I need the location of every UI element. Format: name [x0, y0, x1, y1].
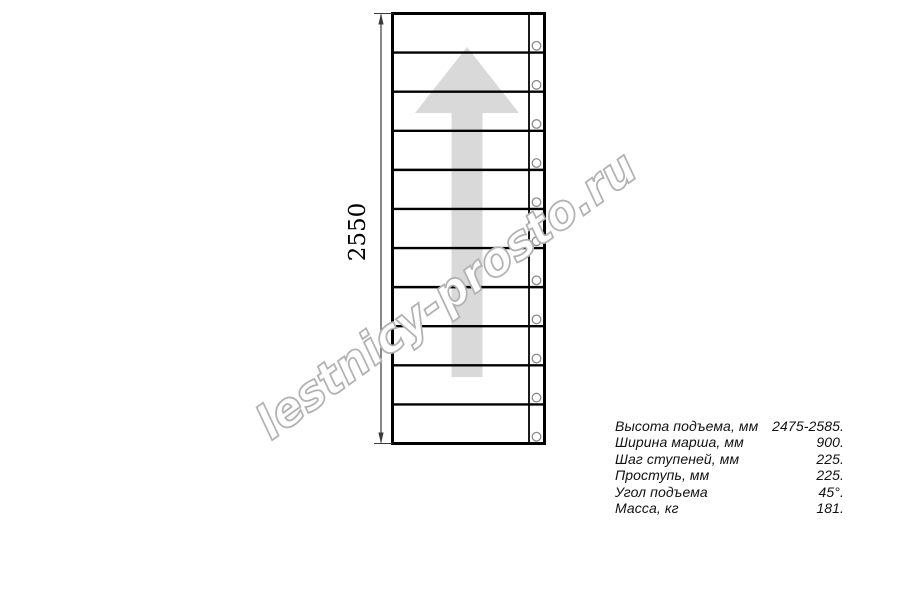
spec-value: 2475-2585. — [772, 418, 844, 434]
spec-row: Угол подъема45°. — [615, 484, 844, 500]
spec-value: 225. — [816, 467, 844, 483]
spec-label: Проступь, мм — [615, 467, 709, 483]
bolt-circle — [532, 315, 541, 324]
bolt-circle — [532, 393, 541, 402]
spec-row: Ширина марша, мм900. — [615, 434, 844, 450]
dimension-arrow-up — [378, 14, 383, 25]
spec-value: 45°. — [819, 484, 844, 500]
bolt-circle — [532, 159, 541, 168]
spec-value: 225. — [816, 451, 844, 467]
spec-row: Высота подъема, мм2475-2585. — [615, 418, 844, 434]
spec-label: Шаг ступеней, мм — [615, 451, 739, 467]
bolt-circle — [532, 354, 541, 363]
spec-label: Угол подъема — [615, 484, 708, 500]
bolt-circle — [532, 41, 541, 50]
spec-row: Проступь, мм225. — [615, 467, 844, 483]
page-canvas: 2550lestnicy-prosto.ru Высота подъема, м… — [0, 0, 900, 600]
spec-table: Высота подъема, мм2475-2585.Ширина марша… — [615, 418, 844, 516]
spec-label: Масса, кг — [615, 500, 679, 516]
spec-value: 900. — [816, 434, 844, 450]
bolt-circle — [532, 432, 541, 441]
spec-value: 181. — [816, 500, 844, 516]
dimension-arrow-down — [378, 433, 383, 444]
bolt-circle — [532, 120, 541, 129]
spec-label: Ширина марша, мм — [615, 434, 744, 450]
bolt-circle — [532, 81, 541, 90]
spec-label: Высота подъема, мм — [615, 418, 758, 434]
dimension-label: 2550 — [345, 203, 371, 262]
spec-row: Шаг ступеней, мм225. — [615, 451, 844, 467]
bolt-circle — [532, 276, 541, 285]
spec-row: Масса, кг181. — [615, 500, 844, 516]
